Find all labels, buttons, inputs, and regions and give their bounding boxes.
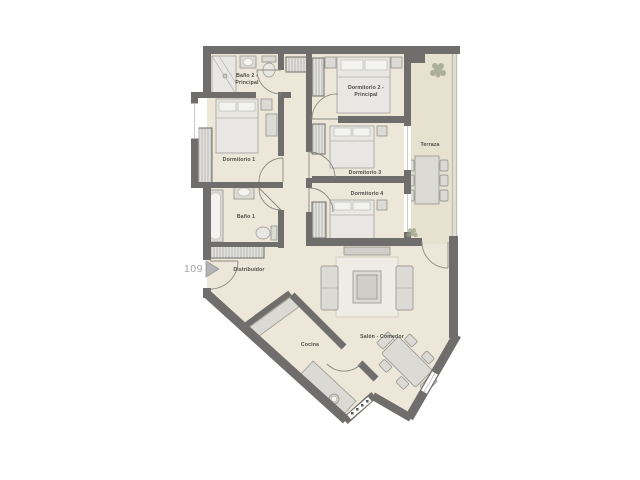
wall [203, 242, 283, 247]
toilet-tank [262, 56, 276, 62]
bathtub-inner [211, 193, 221, 239]
nightstand [261, 99, 272, 110]
label-dormitorio1: Dormitorio 1 [223, 157, 256, 163]
terrace-chair [440, 190, 448, 201]
label-bano1: Baño 1 [237, 214, 255, 220]
label-bano2-line2: Principal [235, 80, 259, 86]
nightstand [377, 126, 387, 136]
closet-dorm4 [312, 202, 326, 238]
label-salon: Salón - Comedor [360, 334, 404, 340]
unit-number: 109 [184, 263, 203, 275]
pillow [334, 128, 351, 136]
sink-basin [238, 188, 250, 196]
toilet-bowl [256, 227, 270, 239]
glass-tick [361, 404, 364, 407]
wall [306, 178, 312, 188]
wall [312, 176, 404, 183]
nightstand [325, 57, 336, 68]
wall-top [203, 46, 460, 54]
pillow [353, 128, 370, 136]
dresser-dorm1 [266, 114, 277, 136]
label-dormitorio4: Dormitorio 4 [351, 191, 384, 197]
wall-stub [409, 54, 425, 63]
pillow [219, 102, 236, 111]
glass-tick [366, 400, 369, 403]
nightstand [377, 200, 387, 210]
glass-tick [351, 412, 354, 415]
wall-left [203, 186, 211, 260]
pillow [341, 60, 363, 70]
terrace-chair [440, 175, 448, 186]
toilet-tank [271, 226, 277, 240]
wall-left [203, 46, 211, 98]
wall-right [449, 236, 458, 338]
coffee-table-top [357, 275, 377, 299]
pillow [238, 102, 255, 111]
terrace-dining-set [406, 156, 448, 204]
pillow [334, 202, 351, 210]
wall [278, 52, 284, 70]
closet-hall [206, 246, 264, 258]
label-dormitorio2-line2: Principal [354, 92, 378, 98]
glass-tick [356, 408, 359, 411]
closet-dorm1 [198, 128, 212, 186]
terrace-table [415, 156, 439, 204]
shower-drain [223, 74, 227, 78]
closet-dorm3 [312, 124, 325, 154]
terrace-floor [411, 54, 456, 244]
label-dormitorio3: Dormitorio 3 [349, 170, 382, 176]
label-distribuidor: Distribuidor [233, 267, 264, 273]
floor-plan-svg: Baño 2 - Principal Dormitorio 1 Dormitor… [0, 0, 640, 480]
tv-sideboard [344, 247, 390, 255]
pillow [353, 202, 370, 210]
closet-dorm2 [312, 58, 324, 96]
pillow [365, 60, 387, 70]
terrace-chair [440, 160, 448, 171]
kitchen-sink-basin [331, 396, 337, 402]
wall [278, 92, 284, 156]
label-dormitorio2-line1: Dormitorio 2 - [348, 85, 384, 91]
label-bano2-line1: Baño 2 - [236, 73, 258, 79]
wall [306, 52, 312, 152]
wall [306, 212, 312, 242]
label-terraza: Terraza [420, 142, 439, 148]
nightstand [391, 57, 402, 68]
floor-plan-canvas: Baño 2 - Principal Dormitorio 1 Dormitor… [0, 0, 640, 480]
wall [338, 116, 406, 123]
label-cocina: Cocina [301, 342, 319, 348]
sink-basin [243, 59, 253, 66]
